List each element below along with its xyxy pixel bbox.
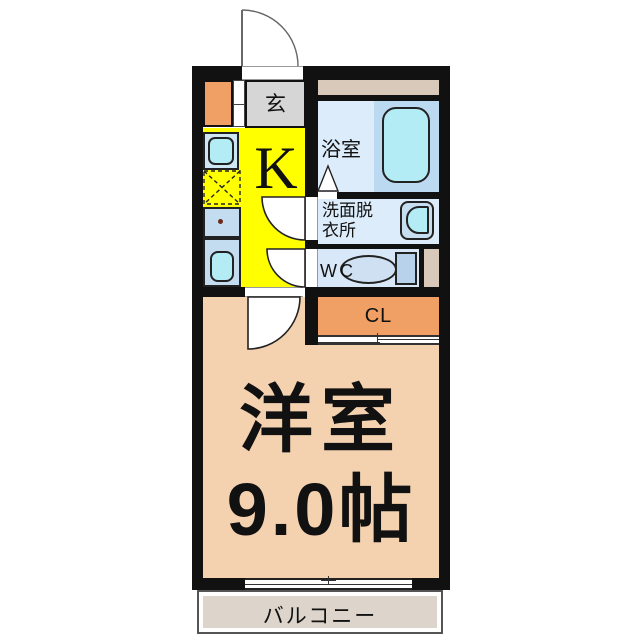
wc-label: WC bbox=[320, 261, 356, 282]
washroom-label-line2: 衣所 bbox=[322, 221, 373, 241]
balcony-label: バルコニー bbox=[197, 600, 443, 630]
door-swing-washroom bbox=[262, 197, 305, 240]
washroom-label: 洗面脱 衣所 bbox=[322, 201, 373, 242]
washroom-label-line1: 洗面脱 bbox=[322, 201, 373, 221]
bathroom-label: 浴室 bbox=[321, 133, 361, 162]
entrance-door-swing bbox=[242, 10, 298, 66]
floor-plan: 玄 K 浴室 洗面脱 衣所 WC CL 洋室 9.0帖 バルコニー bbox=[0, 0, 640, 640]
door-swing-main-room bbox=[248, 297, 300, 349]
closet-label: CL bbox=[318, 305, 439, 328]
bathroom-door-marker bbox=[318, 166, 338, 191]
entrance-label: 玄 bbox=[245, 88, 306, 118]
refrigerator-space bbox=[204, 171, 240, 204]
main-room-size: 9.0帖 bbox=[203, 450, 439, 557]
kitchen-label: K bbox=[241, 134, 311, 203]
door-swing-wc bbox=[267, 249, 305, 287]
